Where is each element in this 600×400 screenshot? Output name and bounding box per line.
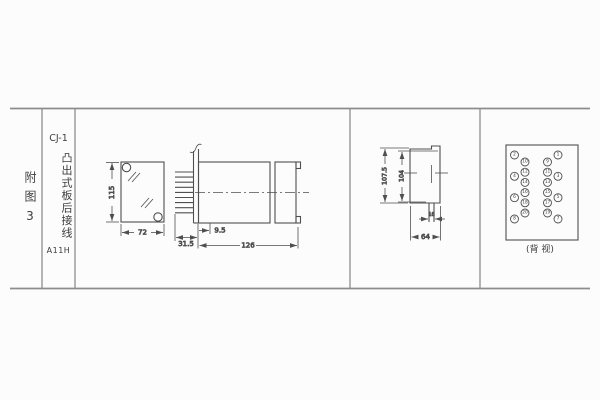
terminal-4-number: 4 [513, 173, 516, 179]
dim-label-31-5: 31.5 [178, 240, 194, 248]
dim-label-72: 72 [138, 229, 147, 237]
mounting-plate [190, 144, 202, 223]
front-panel-view: 115 72 [106, 162, 164, 237]
wiring-type-label: 凸出式板后接线 [43, 150, 74, 242]
hatch-marks [128, 172, 153, 208]
terminal-19-number: 19 [545, 210, 551, 216]
figure-number-label: 附图3 [15, 170, 39, 230]
terminal-12-number: 12 [522, 169, 528, 175]
rear-body-outline [410, 146, 440, 203]
terminal-14-number: 14 [522, 179, 528, 185]
terminal-block-outline [506, 145, 578, 240]
dim-label-64: 64 [421, 233, 430, 241]
mounting-hole-bottom-right [154, 213, 162, 221]
drawing-sheet: 115 72 [0, 0, 600, 400]
dimension-31-5: 31.5 [175, 214, 198, 249]
terminal-17-number: 17 [545, 199, 551, 205]
terminal-6-number: 6 [513, 194, 516, 200]
mounting-hole-top-left [122, 163, 130, 171]
dim-label-115: 115 [108, 186, 116, 199]
dimension-16: 16 [419, 212, 445, 219]
dim-label-126: 126 [241, 242, 255, 250]
dimension-9-5: 9.5 [199, 224, 226, 235]
side-view: 9.5 31.5 126 [175, 144, 309, 249]
terminal-16-number: 16 [522, 189, 528, 195]
break-line-squiggle [190, 144, 202, 152]
terminal-18-number: 18 [522, 199, 528, 205]
terminal-10-number: 10 [522, 159, 528, 165]
table-frame [10, 109, 590, 289]
center-marks [404, 165, 448, 183]
terminal-13-number: 13 [545, 179, 551, 185]
dim-label-104: 104 [399, 170, 406, 182]
terminal-back-view: 2468101214161820911131517191357 (背 视) [506, 145, 578, 255]
code-label: A11H [43, 246, 74, 255]
model-label: CJ-1 [43, 133, 74, 144]
back-view-caption: (背 视) [526, 243, 554, 255]
terminal-5-number: 5 [557, 194, 560, 200]
terminal-3-number: 3 [557, 173, 560, 179]
dimension-104: 104 [398, 151, 438, 202]
terminal-2-number: 2 [513, 152, 516, 158]
terminal-15-number: 15 [545, 189, 551, 195]
dim-label-9-5: 9.5 [214, 227, 225, 235]
dim-label-107-5: 107.5 [382, 167, 389, 185]
rear-outline-view: 107.5 104 16 64 [380, 146, 448, 241]
terminal-11-number: 11 [545, 169, 551, 175]
terminal-1-number: 1 [557, 152, 560, 158]
dimension-64: 64 [411, 206, 441, 241]
dimension-72: 72 [121, 224, 164, 237]
terminal-7-number: 7 [557, 216, 560, 222]
terminal-9-number: 9 [546, 159, 549, 165]
dimension-115: 115 [106, 163, 119, 223]
technical-drawing-canvas: 115 72 [0, 0, 600, 400]
terminal-8-number: 8 [513, 216, 516, 222]
terminals-group: 2468101214161820911131517191357 [511, 151, 563, 223]
dim-label-16: 16 [428, 212, 434, 218]
terminal-pins-comb [175, 172, 194, 213]
terminal-20-number: 20 [522, 210, 528, 216]
